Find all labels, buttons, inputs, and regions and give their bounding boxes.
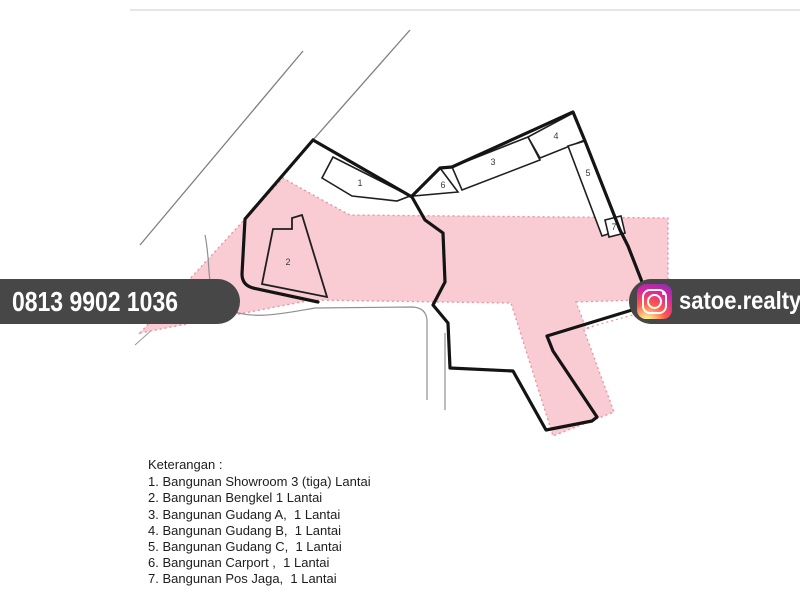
road-edge-line-inner: [313, 30, 410, 140]
building-7-label: 7: [611, 222, 616, 232]
building-2-label: 2: [285, 257, 290, 267]
legend-item-7: 7. Bangunan Pos Jaga, 1 Lantai: [148, 571, 371, 587]
legend-title: Keterangan :: [148, 457, 371, 473]
instagram-badge: satoe.realty: [629, 279, 800, 324]
legend-item-1: 1. Bangunan Showroom 3 (tiga) Lantai: [148, 474, 371, 490]
phone-number: 0813 9902 1036: [12, 286, 178, 318]
building-3-gudang-a: [452, 137, 540, 190]
phone-badge: 0813 9902 1036: [0, 279, 240, 324]
legend-item-6: 6. Bangunan Carport , 1 Lantai: [148, 555, 371, 571]
legend-item-4: 4. Bangunan Gudang B, 1 Lantai: [148, 523, 371, 539]
building-3-label: 3: [490, 157, 495, 167]
legend-item-3: 3. Bangunan Gudang A, 1 Lantai: [148, 507, 371, 523]
instagram-handle: satoe.realty: [679, 287, 800, 316]
building-5-label: 5: [585, 168, 590, 178]
legend: Keterangan : 1. Bangunan Showroom 3 (tig…: [148, 457, 371, 588]
building-4-label: 4: [553, 131, 558, 141]
building-1-showroom: [322, 157, 410, 201]
instagram-icon: [637, 284, 672, 319]
building-6-label: 6: [440, 180, 445, 190]
site-plan-page: 1 2 3 4 5 6 7 0813 9902 1036 satoe.realt…: [0, 0, 800, 600]
building-1-label: 1: [357, 178, 362, 188]
legend-item-2: 2. Bangunan Bengkel 1 Lantai: [148, 490, 371, 506]
legend-item-5: 5. Bangunan Gudang C, 1 Lantai: [148, 539, 371, 555]
camera-flash-dot: [662, 291, 666, 295]
